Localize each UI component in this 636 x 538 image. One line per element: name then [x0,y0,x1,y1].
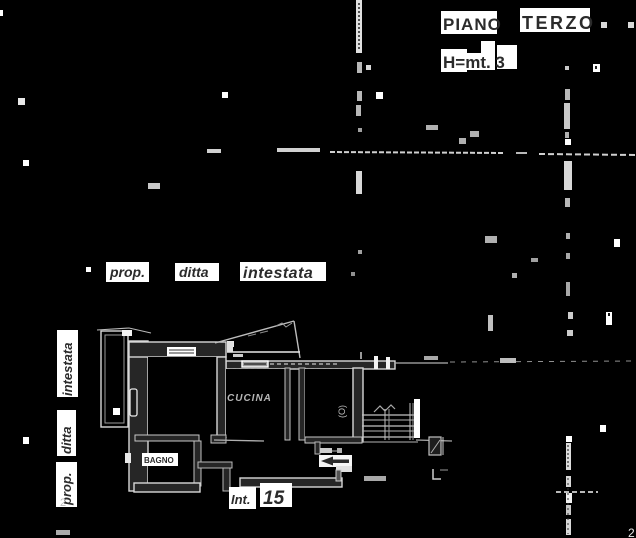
svg-text:BAGNO: BAGNO [144,456,174,465]
svg-text:Int.: Int. [231,492,251,507]
svg-text:prop.: prop. [109,264,145,280]
svg-text:intestata: intestata [243,265,313,282]
svg-text:2: 2 [628,526,635,538]
svg-text:ditta: ditta [59,427,74,454]
svg-text:(O): (O) [337,405,347,418]
svg-text:intestata: intestata [60,343,75,396]
svg-text:H=mt. 3: H=mt. 3 [443,53,505,72]
svg-text:2: 2 [60,497,66,509]
svg-text:15: 15 [263,488,285,509]
svg-text:PIANO: PIANO [443,15,502,34]
svg-text:ditta: ditta [179,264,209,280]
svg-text:TERZO: TERZO [522,13,596,33]
svg-text:CUCINA: CUCINA [227,393,272,404]
